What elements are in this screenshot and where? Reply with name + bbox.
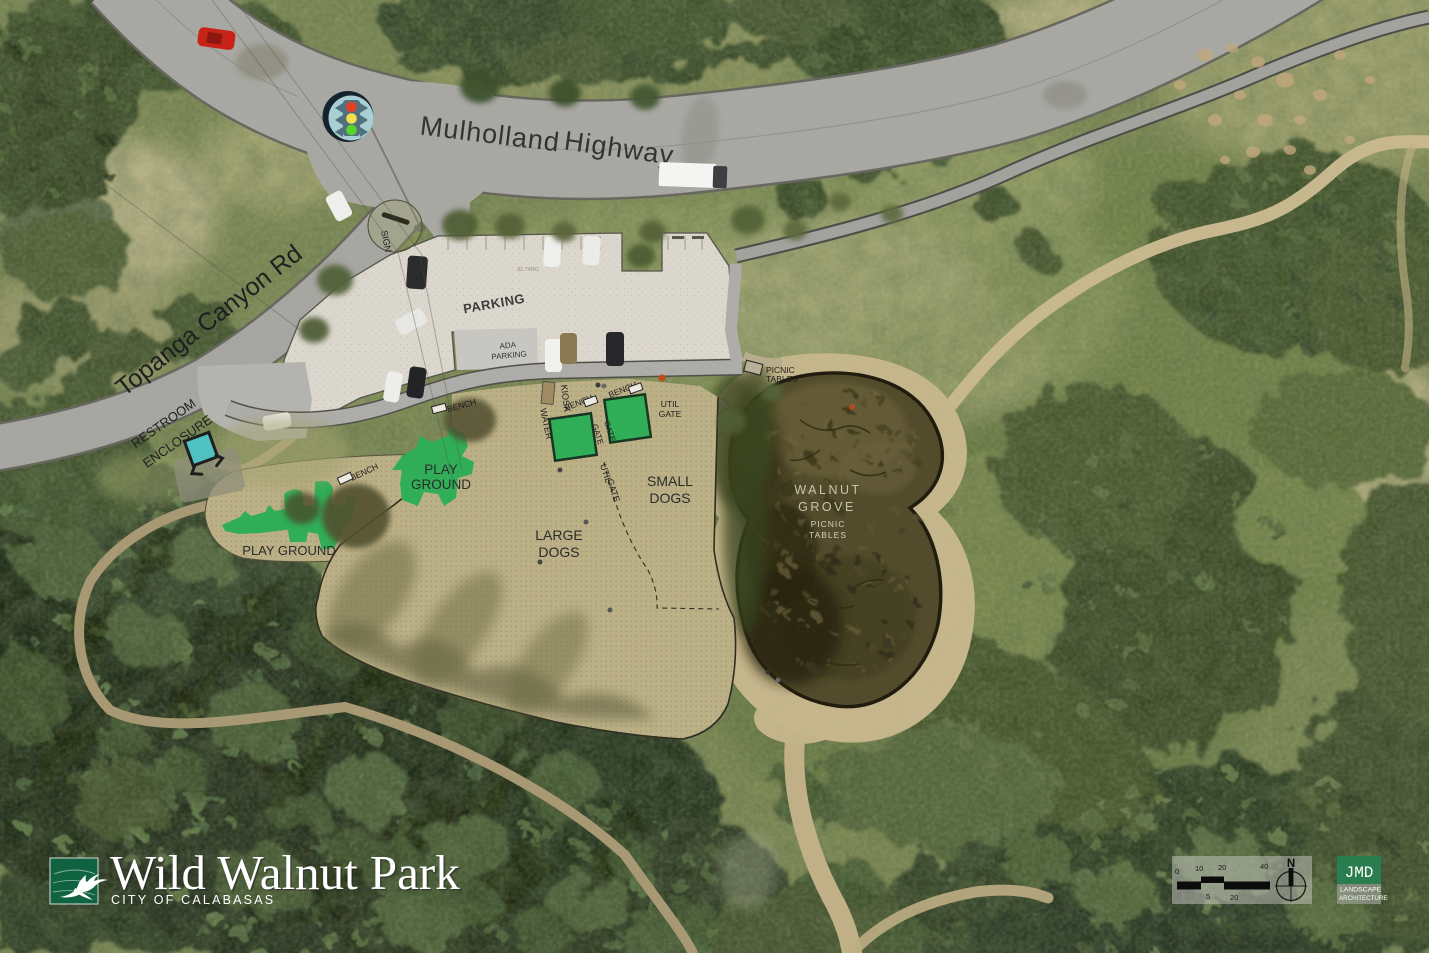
svg-text:SMALL: SMALL bbox=[647, 473, 693, 489]
svg-text:DOGS: DOGS bbox=[649, 490, 690, 506]
svg-text:LANDSCAPE: LANDSCAPE bbox=[1340, 887, 1382, 894]
svg-text:GROUND: GROUND bbox=[411, 477, 471, 492]
svg-text:40: 40 bbox=[1260, 862, 1268, 871]
svg-text:ARCHITECTURE: ARCHITECTURE bbox=[1339, 895, 1387, 902]
svg-text:TABLES: TABLES bbox=[766, 374, 798, 384]
svg-text:UTIL: UTIL bbox=[661, 399, 680, 409]
svg-text:DOGS: DOGS bbox=[538, 544, 579, 560]
svg-text:GATE: GATE bbox=[659, 409, 682, 419]
svg-text:TABLES: TABLES bbox=[809, 530, 847, 540]
svg-text:WALNUT: WALNUT bbox=[794, 483, 861, 497]
svg-text:N: N bbox=[1287, 858, 1295, 870]
svg-text:PLAY: PLAY bbox=[424, 462, 458, 477]
svg-text:0: 0 bbox=[1175, 867, 1179, 876]
svg-text:Wild Walnut Park: Wild Walnut Park bbox=[110, 845, 460, 900]
svg-text:JMD: JMD bbox=[1345, 864, 1374, 882]
svg-text:20: 20 bbox=[1218, 863, 1226, 872]
svg-text:LARGE: LARGE bbox=[535, 527, 582, 543]
svg-text:20: 20 bbox=[1230, 893, 1238, 902]
svg-text:PLAY GROUND: PLAY GROUND bbox=[242, 543, 335, 558]
svg-text:10: 10 bbox=[1195, 864, 1203, 873]
svg-text:GROVE: GROVE bbox=[798, 500, 856, 514]
svg-text:PICNIC: PICNIC bbox=[811, 519, 846, 529]
svg-text:CITY OF CALABASAS: CITY OF CALABASAS bbox=[111, 893, 275, 907]
svg-text:5: 5 bbox=[1206, 892, 1210, 901]
